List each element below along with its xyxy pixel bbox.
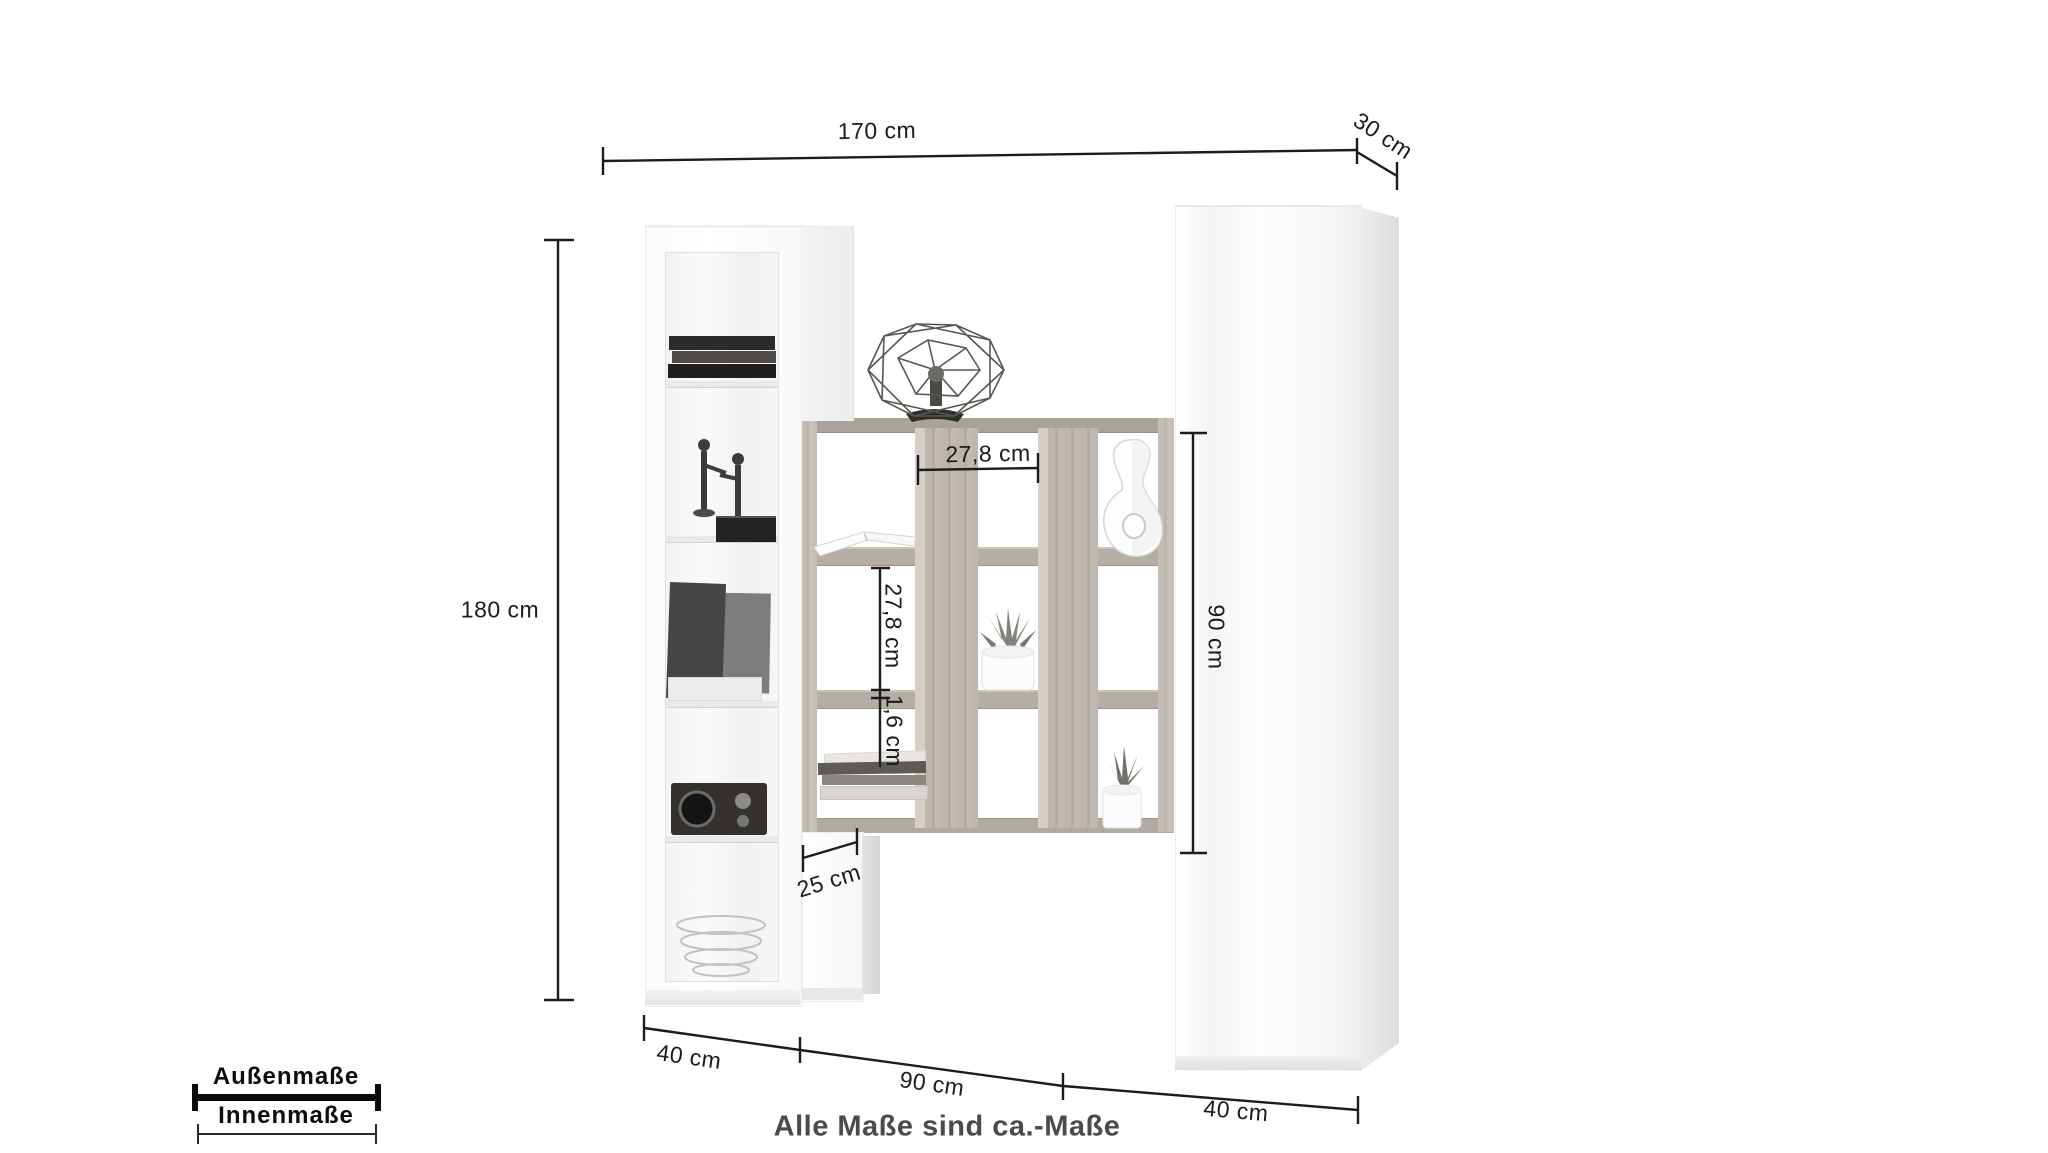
dim-label-total-width: 170 cm (838, 119, 917, 143)
dim-label-shelf-height: 90 cm (1205, 604, 1228, 669)
dim-label-height: 180 cm (461, 599, 539, 622)
shelf-divider-side (1048, 428, 1098, 828)
cabinet-shelf (666, 836, 778, 843)
dim-label-bottom-center: 90 cm (898, 1068, 966, 1100)
dim-line-depth (1357, 152, 1397, 190)
right-cabinet-bottom (1175, 1056, 1361, 1070)
dim-label-inner-height: 27,8 cm (882, 583, 905, 668)
shelf-leg-bottom (802, 988, 862, 1000)
dim-label-depth: 30 cm (1349, 109, 1416, 164)
left-cabinet-glass-door (665, 252, 779, 982)
dim-line-total-width (603, 150, 1357, 161)
dim-label-bottom-left: 40 cm (655, 1041, 723, 1073)
cabinet-shelf (666, 701, 778, 708)
shelf-leg-front (802, 832, 864, 1002)
approx-measures-note: Alle Maße sind ca.-Maße (774, 1111, 1121, 1144)
dim-label-inner-width: 27,8 cm (945, 442, 1031, 466)
potted-plant (974, 606, 1042, 694)
magazine-stack (818, 750, 934, 802)
dim-label-bottom-right: 40 cm (1203, 1097, 1270, 1126)
books (672, 351, 776, 363)
legend-inner-label: Innenmaße (218, 1102, 354, 1130)
radio-face (671, 783, 767, 835)
product-dimension-diagram: 170 cm 30 cm 180 cm 27,8 cm 27,8 cm 1,6 … (0, 0, 2048, 1153)
left-cabinet-bottom (645, 990, 800, 1005)
legend-outer-label: Außenmaße (213, 1063, 359, 1091)
legend-outer-line (195, 1094, 378, 1101)
decor-vase (1098, 438, 1166, 558)
shelf-leg-side (862, 836, 880, 994)
succulent-plant (1096, 738, 1148, 830)
wire-cage-lamp (858, 318, 1016, 424)
shelf-left-plank (800, 418, 817, 832)
media-player (716, 516, 776, 542)
legend-inner-line (197, 1133, 377, 1135)
papers (668, 677, 762, 701)
wire-basket (669, 913, 773, 981)
open-book (812, 520, 920, 560)
dim-label-panel-thickness: 1,6 cm (883, 695, 906, 767)
dim-line-height (544, 240, 574, 1000)
books (669, 336, 775, 350)
left-cabinet-side (799, 226, 854, 421)
cabinet-shelf (666, 381, 778, 388)
right-cabinet-side (1361, 203, 1399, 1077)
books (668, 364, 776, 378)
